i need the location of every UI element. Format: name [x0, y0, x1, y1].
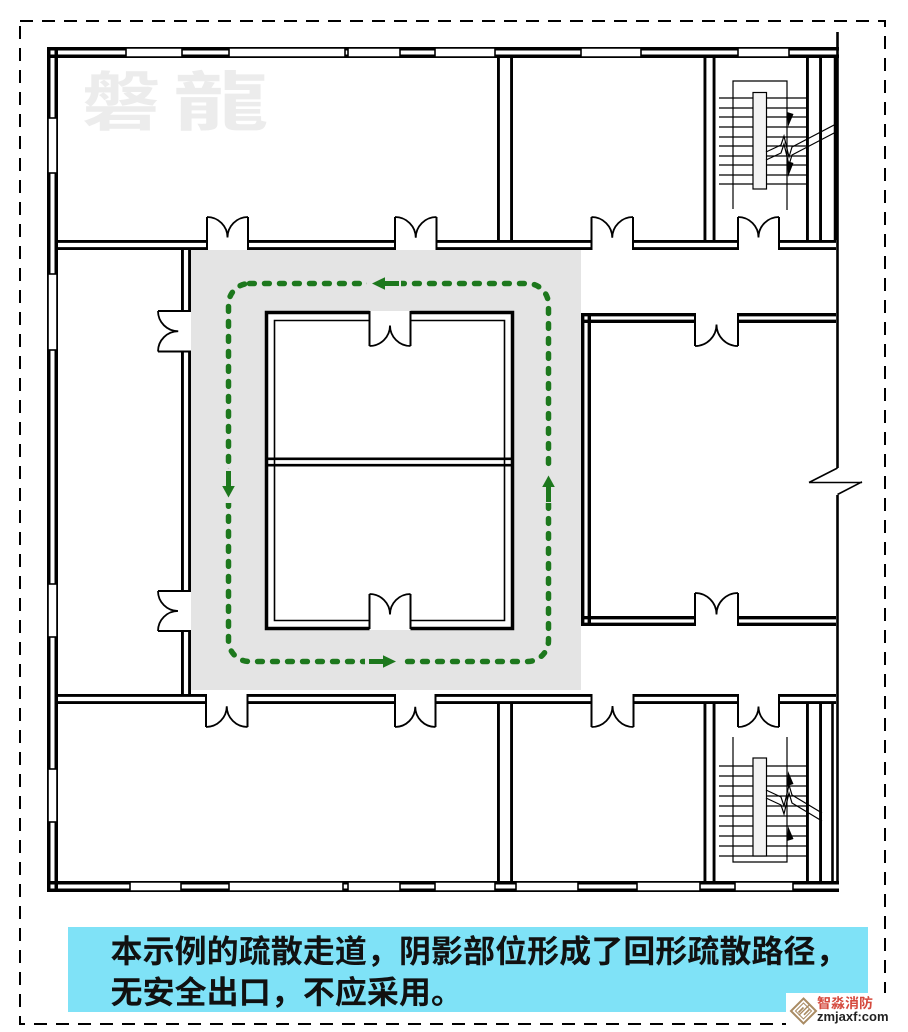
svg-text:zmjaxf:com: zmjaxf:com [817, 1009, 889, 1024]
